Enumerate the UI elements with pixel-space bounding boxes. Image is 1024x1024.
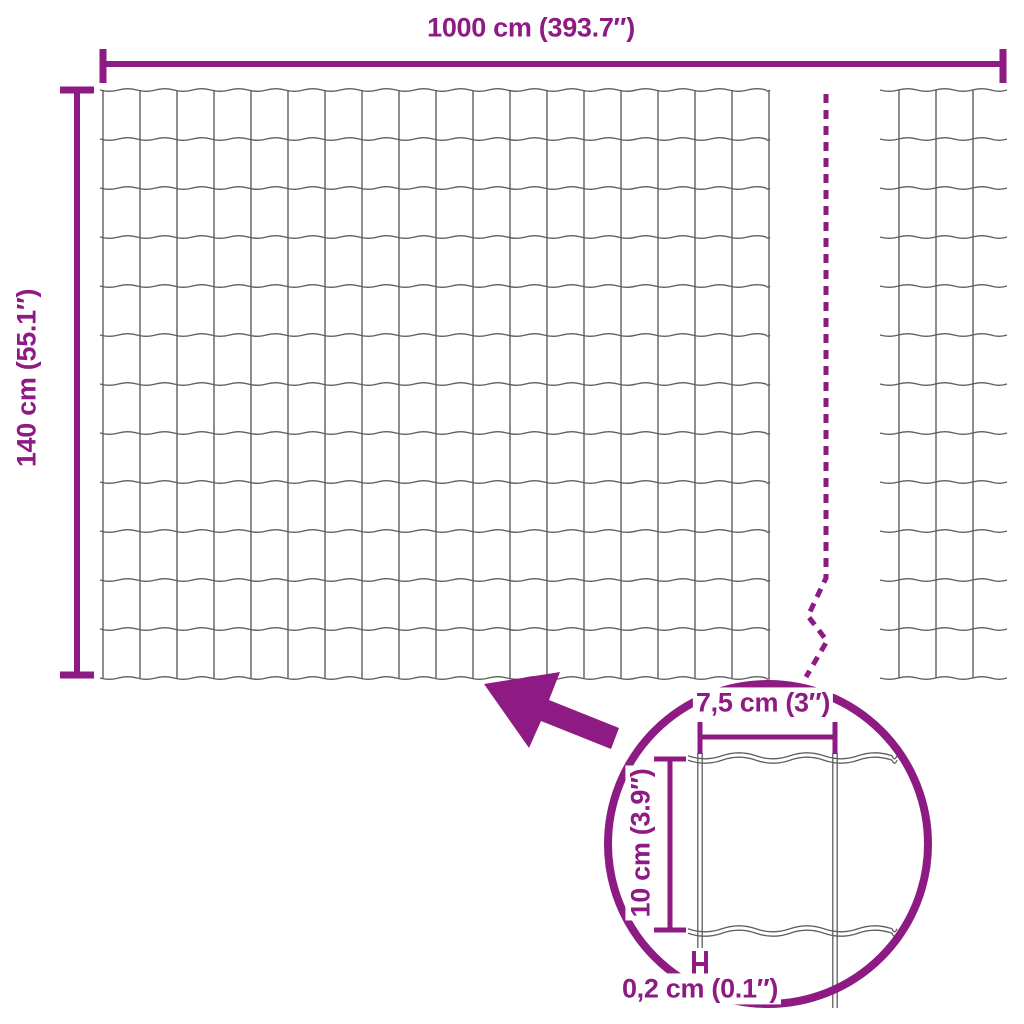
- mesh-horizontal-wire: [100, 579, 770, 582]
- fence-dimension-diagram: 1000 cm (393.7″) 140 cm (55.1″) 7,5 cm (…: [0, 0, 1024, 1024]
- detail-cell-height-label: 10 cm (3.9″): [625, 766, 656, 921]
- detail-pointer-arrow-icon: [484, 672, 619, 749]
- length-break-dashed-line-icon: [806, 94, 827, 677]
- detail-horizontal-wire: [688, 757, 897, 763]
- mesh-horizontal-wire: [100, 432, 770, 435]
- mesh-horizontal-wire: [100, 530, 770, 533]
- annotations: [60, 49, 1003, 1004]
- mesh-horizontal-wire: [100, 89, 770, 92]
- mesh-horizontal-wire: [100, 138, 770, 141]
- mesh-horizontal-wire: [100, 285, 770, 288]
- fence-mesh-drawing: [0, 0, 1024, 1024]
- mesh-horizontal-wire: [100, 481, 770, 484]
- mesh-horizontal-wire: [100, 334, 770, 337]
- total-width-label: 1000 cm (393.7″): [423, 12, 639, 43]
- detail-cell-width-label: 7,5 cm (3″): [693, 687, 833, 718]
- mesh-horizontal-wire: [100, 187, 770, 190]
- total-height-label: 140 cm (55.1″): [11, 285, 42, 471]
- mesh-horizontal-wire: [100, 677, 770, 680]
- wire-thickness-label: 0,2 cm (0.1″): [619, 973, 781, 1004]
- detail-horizontal-wire: [688, 930, 897, 936]
- mesh-horizontal-wire: [100, 236, 770, 239]
- mesh-horizontal-wire: [100, 628, 770, 631]
- mesh-horizontal-wire: [100, 383, 770, 386]
- mesh-wires: [100, 89, 1007, 680]
